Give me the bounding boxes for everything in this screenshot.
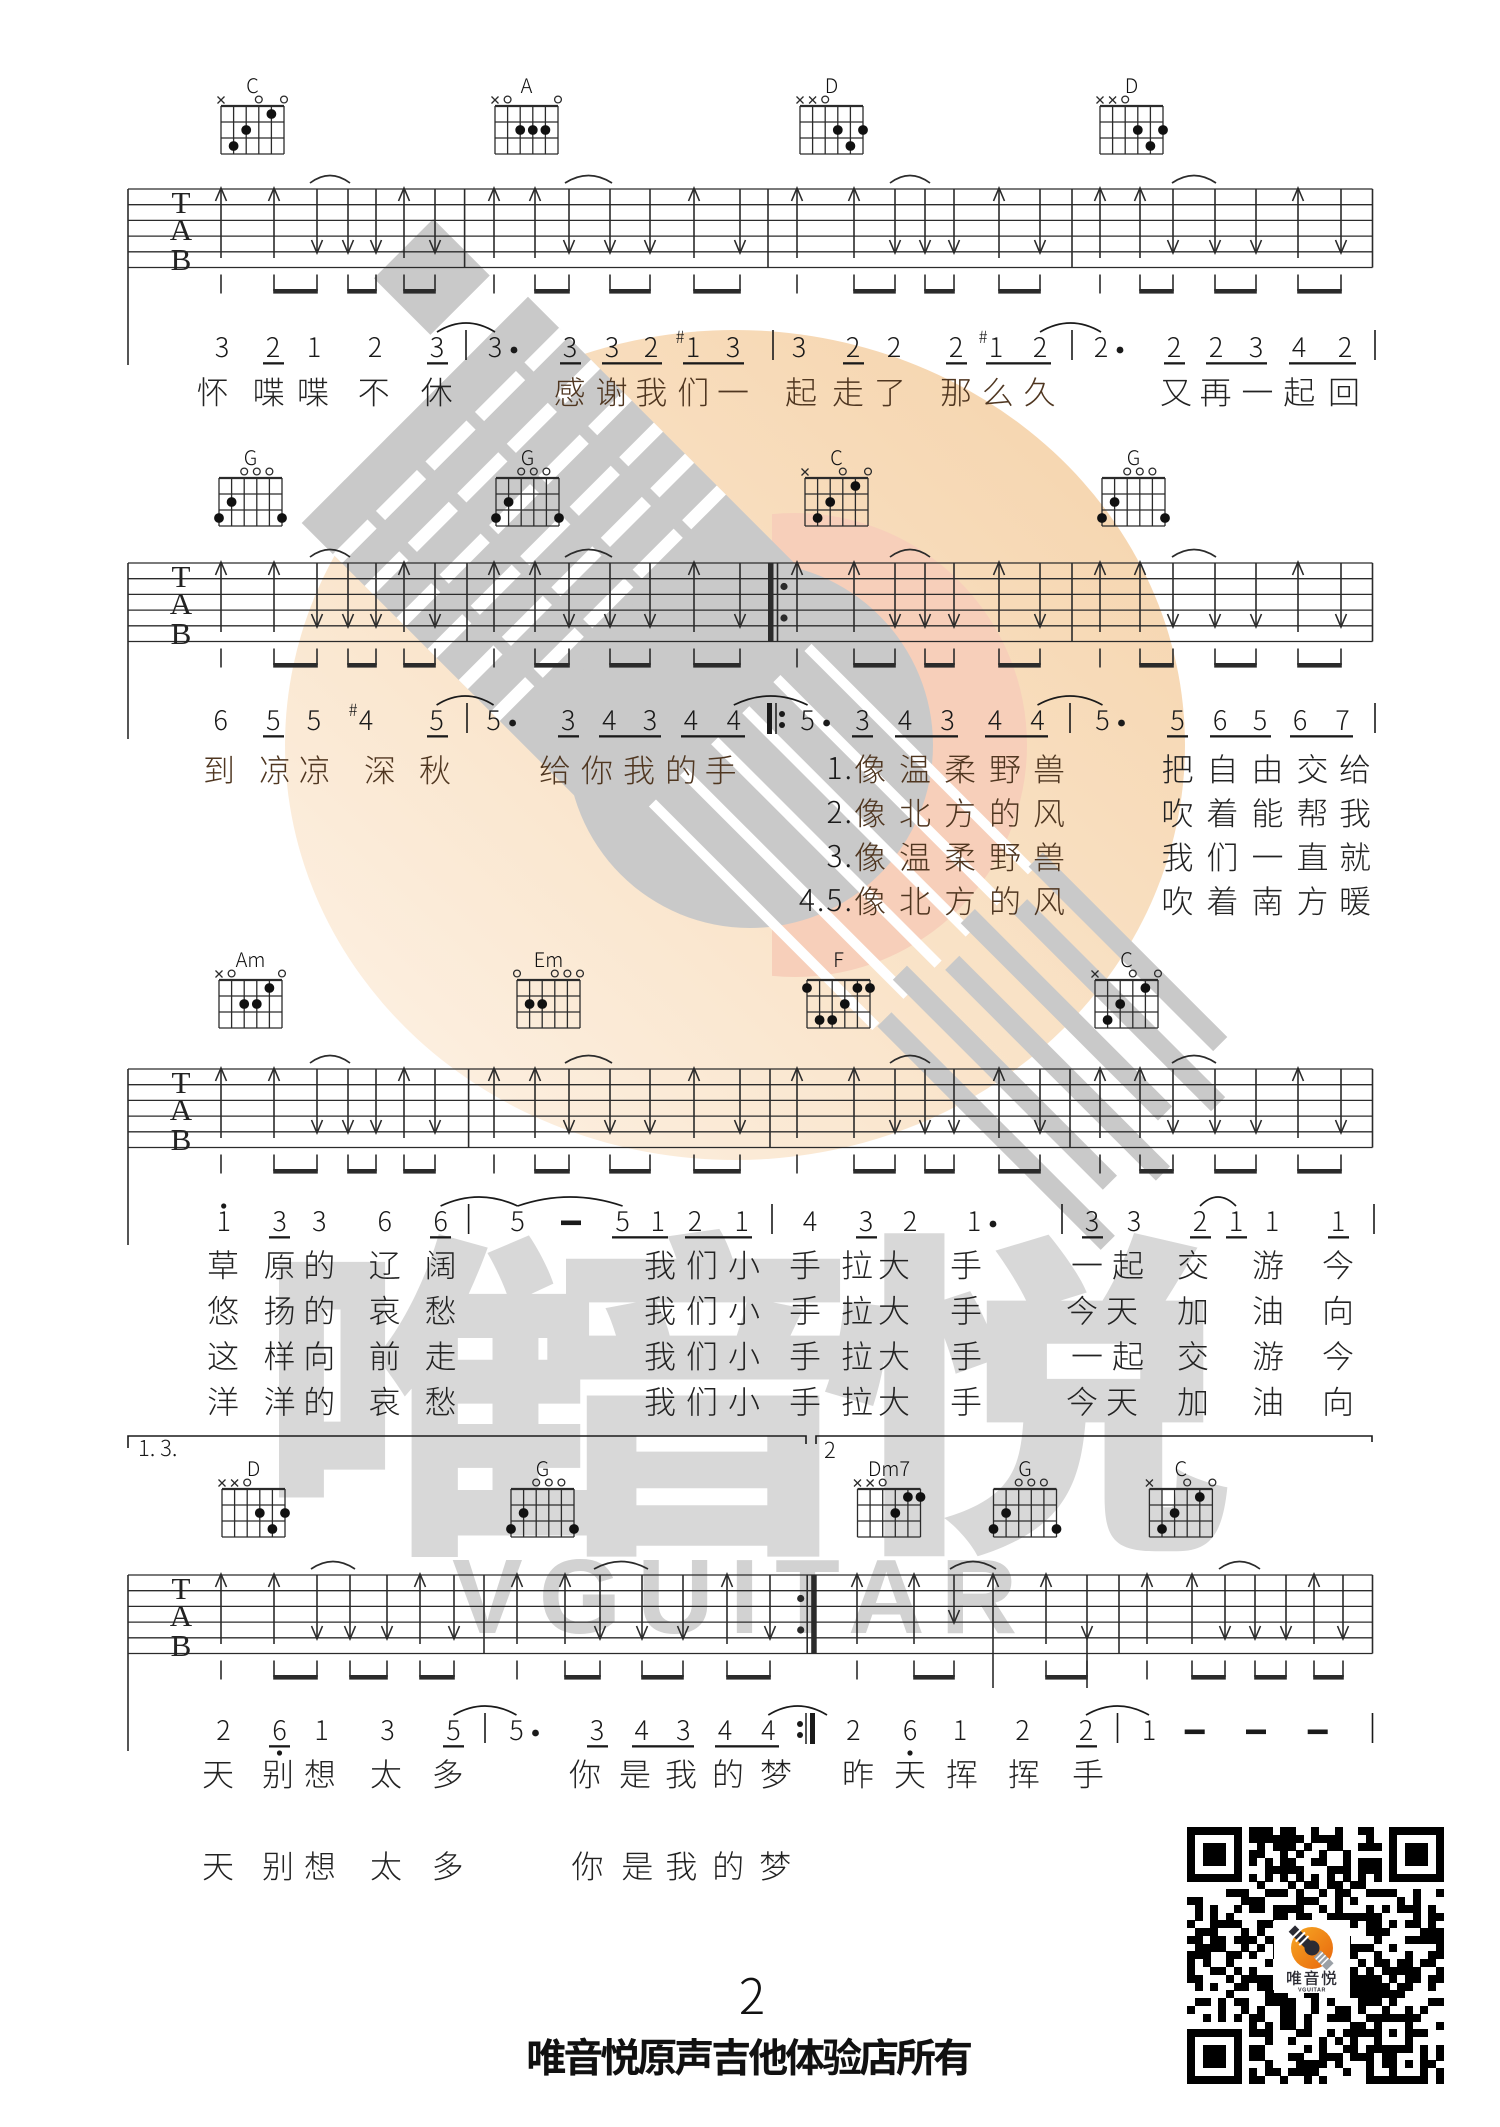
svg-text:B: B	[171, 1122, 192, 1157]
svg-text:VGUITAR: VGUITAR	[1298, 1988, 1326, 1994]
svg-text:B: B	[171, 616, 192, 651]
svg-text:B: B	[171, 1628, 192, 1663]
svg-text:B: B	[171, 242, 192, 277]
